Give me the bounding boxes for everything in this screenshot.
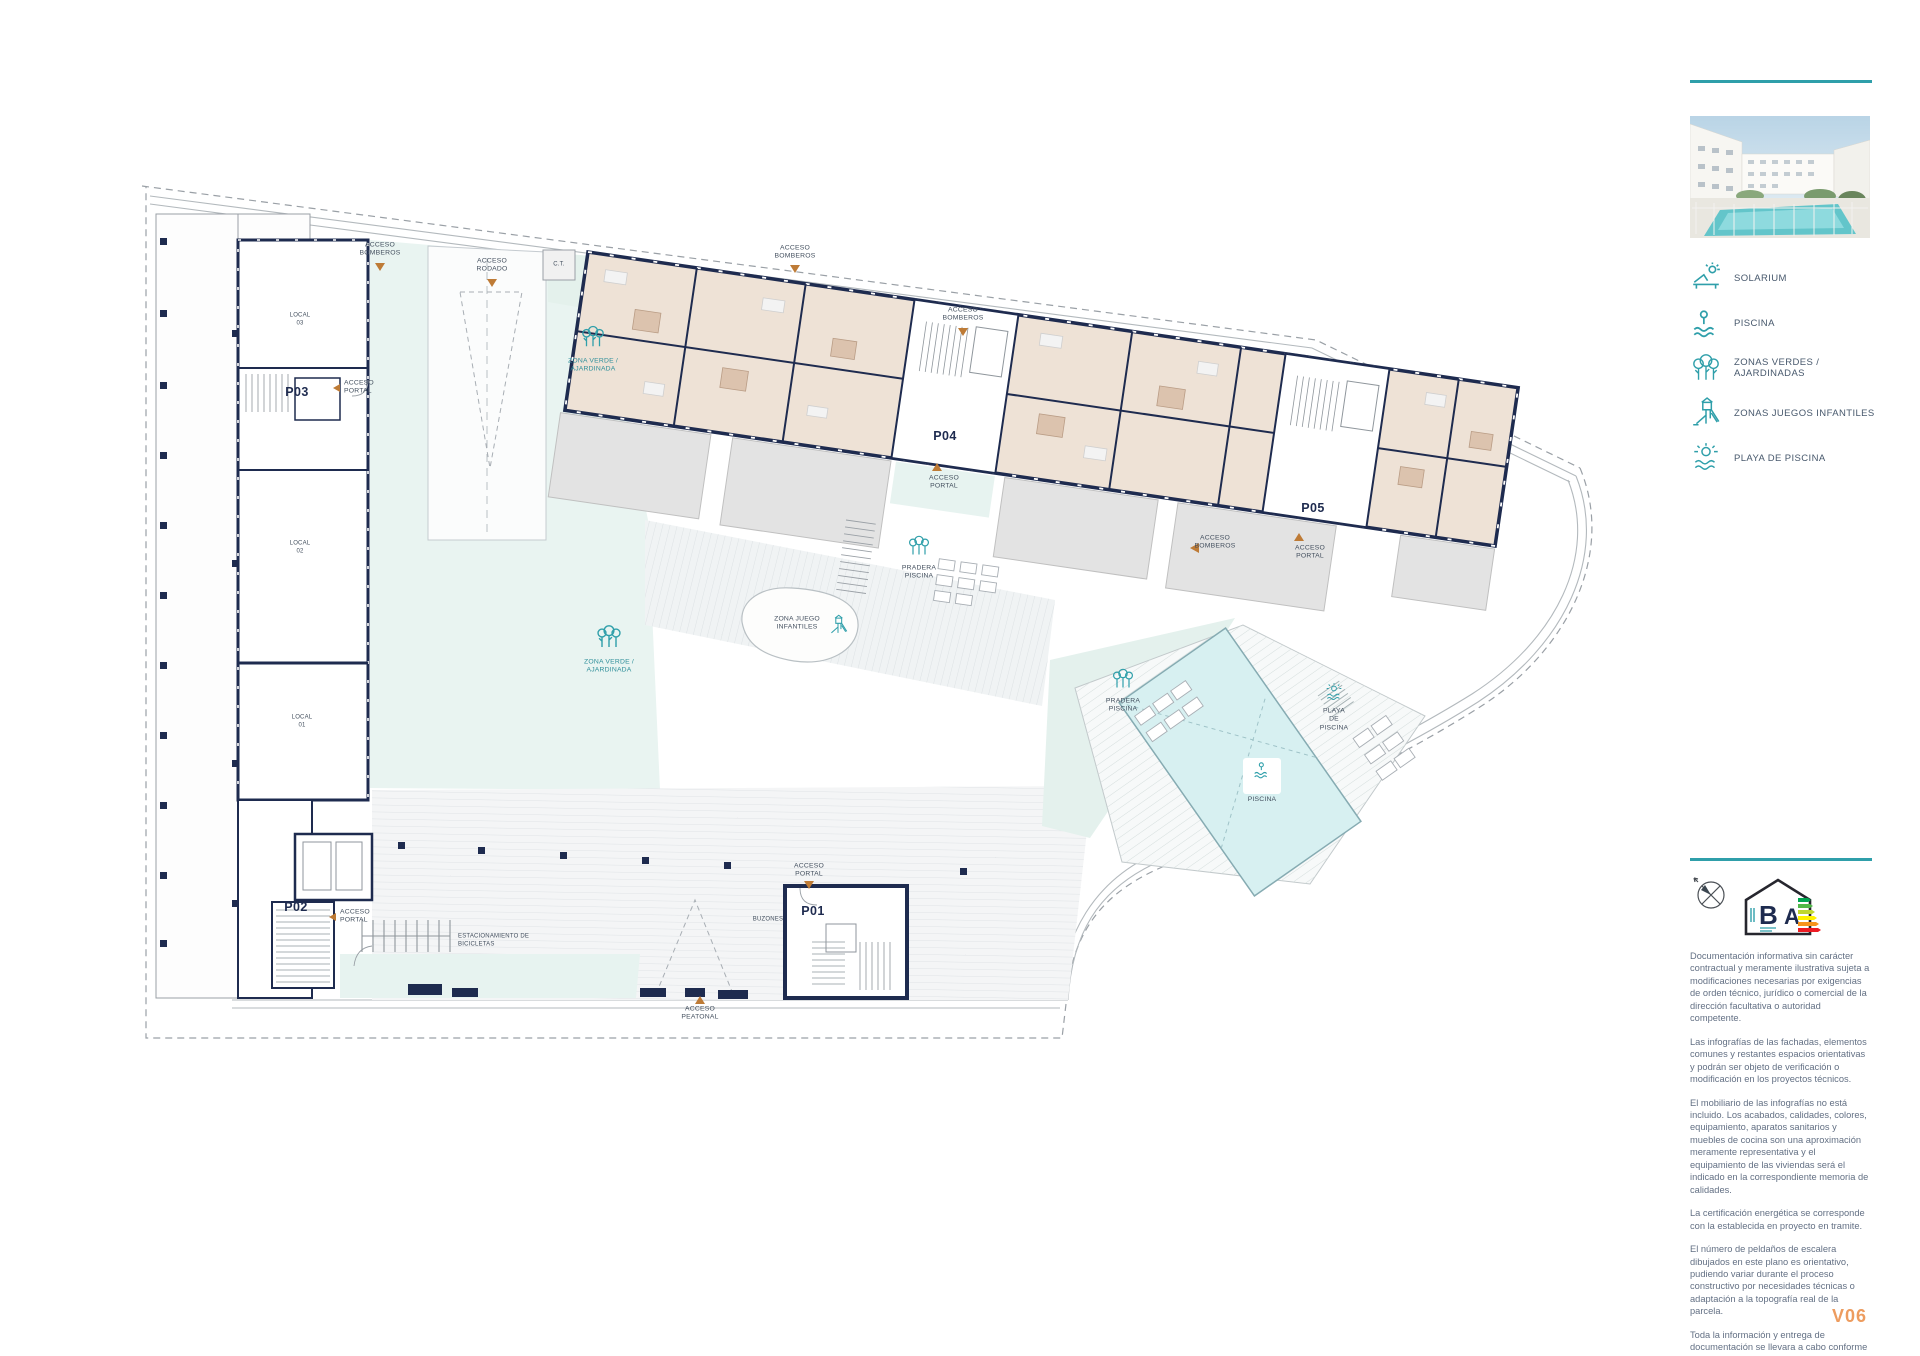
acceso-bomberos-label: ACCESO BOMBEROS [775,245,816,262]
trees-icon [595,623,623,656]
acceso-portal-label: ACCESO PORTAL [794,863,824,880]
project-render-photo [1690,116,1870,238]
piscina-icon [1690,307,1722,339]
parking-area [340,786,1092,1000]
site-plan-drawing [0,0,1920,1356]
portal-p05-label: P05 [1301,501,1324,517]
zonas-juegos-icon [1690,397,1722,429]
legend-label: SOLARIUM [1734,273,1787,284]
disclaimer-paragraph: Toda la información y entrega de documen… [1690,1329,1872,1356]
trees-icon [907,534,931,563]
legend-item-zonas-verdes: ZONAS VERDES / AJARDINADAS [1690,352,1875,384]
acceso-rodado-label: ACCESO RODADO [476,258,507,275]
legend: SOLARIUM PISCINA ZONAS VERDES / AJARDINA… [1690,262,1875,474]
acceso-portal-label: ACCESO PORTAL [1295,545,1325,562]
legend-label: PLAYA DE PISCINA [1734,453,1826,464]
pradera-piscina-label: PRADERA PISCINA [1106,698,1140,715]
solarium-icon [1690,262,1722,294]
disclaimer-text: Documentación informativa sin carácter c… [1690,950,1872,1356]
top-divider [1690,80,1872,83]
version-badge: V06 [1832,1306,1867,1327]
logo-row: B A [1690,868,1875,948]
local-03-label: LOCAL 03 [290,313,311,328]
energy-letter-a: A [1784,904,1800,929]
legend-item-zonas-juegos: ZONAS JUEGOS INFANTILES [1690,397,1875,429]
acceso-portal-label: ACCESO PORTAL [929,475,959,492]
disclaimer-paragraph: Documentación informativa sin carácter c… [1690,950,1872,1025]
zona-juego-label: ZONA JUEGO INFANTILES [774,616,820,633]
bicicletas-label: ESTACIONAMIENTO DE BICICLETAS [458,934,529,949]
swimmer-icon [1252,760,1272,785]
piscina-label: PISCINA [1248,796,1277,804]
zona-verde-label: ZONA VERDE / AJARDINADA [568,358,618,375]
north-compass-icon [1690,874,1730,919]
energy-certificate-logo: B A [1742,876,1824,945]
pradera-piscina-label: PRADERA PISCINA [902,565,936,582]
legend-label: PISCINA [1734,318,1775,329]
buzones-label: BUZONES [753,916,783,924]
playa-piscina-label: PLAYA DE PISCINA [1320,707,1349,732]
trees-icon [580,324,606,355]
local-02-label: LOCAL 02 [290,541,311,556]
legend-label: ZONAS VERDES / AJARDINADAS [1734,357,1875,379]
playground-icon [827,615,849,642]
legend-item-solarium: SOLARIUM [1690,262,1875,294]
bottom-divider [1690,858,1872,861]
disclaimer-paragraph: La certificación energética se correspon… [1690,1207,1872,1232]
acceso-bomberos-label: ACCESO BOMBEROS [943,307,984,324]
ct-label: C.T. [553,261,564,269]
portal-p04-label: P04 [933,429,956,445]
acceso-portal-label: ACCESO PORTAL [340,909,370,926]
legend-label: ZONAS JUEGOS INFANTILES [1734,408,1875,419]
acceso-peatonal-label: ACCESO PEATONAL [681,1006,718,1023]
energy-letter-b: B [1759,900,1778,930]
zonas-verdes-icon [1690,352,1722,384]
local-01-label: LOCAL 01 [292,715,313,730]
zona-verde-label: ZONA VERDE / AJARDINADA [584,659,634,676]
acceso-portal-label: ACCESO PORTAL [344,380,374,397]
legend-item-playa-piscina: PLAYA DE PISCINA [1690,442,1875,474]
portal-p01-label: P01 [801,904,824,920]
portal-p03-label: P03 [285,385,308,401]
disclaimer-paragraph: Las infografías de las fachadas, element… [1690,1036,1872,1086]
portal-p02-label: P02 [284,900,307,916]
info-sidebar: SOLARIUM PISCINA ZONAS VERDES / AJARDINA… [1690,0,1875,1356]
acceso-bomberos-label: ACCESO BOMBEROS [1195,535,1236,552]
floor-plan-page: C.T. ACCESO BOMBEROS ACCESO RODADO ACCES… [0,0,1920,1356]
playa-piscina-icon [1324,683,1344,708]
trees-icon [1111,667,1135,696]
playa-piscina-icon [1690,442,1722,474]
driveway [428,246,546,540]
disclaimer-paragraph: El mobiliario de las infografías no está… [1690,1097,1872,1197]
portal-p01-core [785,886,907,998]
legend-item-piscina: PISCINA [1690,307,1875,339]
acceso-bomberos-label: ACCESO BOMBEROS [360,242,401,259]
